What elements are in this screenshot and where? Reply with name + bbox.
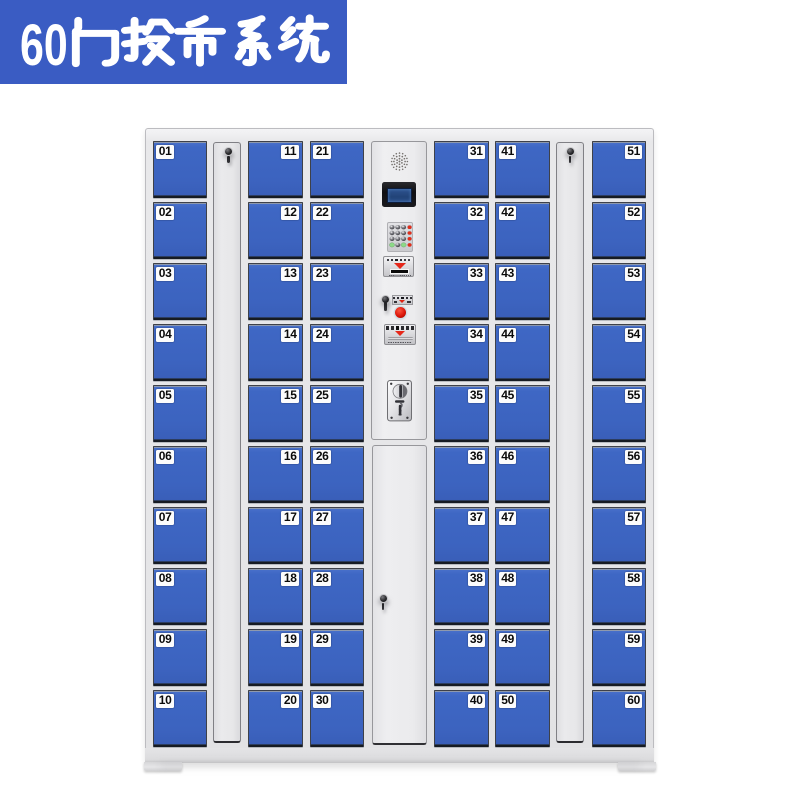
svg-text:60: 60 (20, 13, 68, 78)
